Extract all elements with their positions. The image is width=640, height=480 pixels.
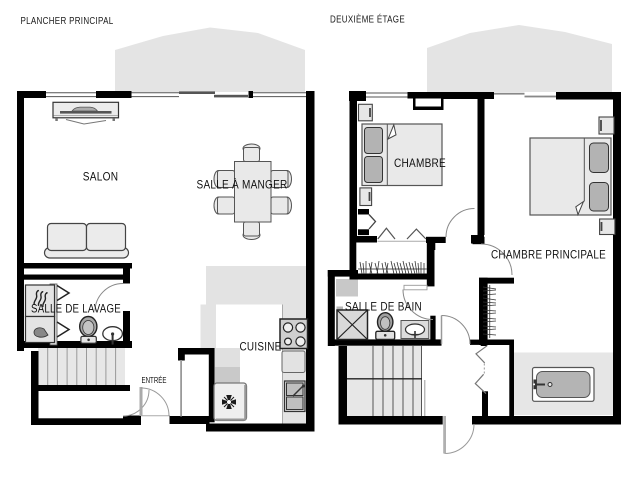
svg-text:ENTRÉE: ENTRÉE — [142, 376, 167, 385]
svg-text:CHAMBRE: CHAMBRE — [394, 156, 446, 170]
svg-text:SALLE DE BAIN: SALLE DE BAIN — [345, 300, 422, 314]
svg-text:SALLE À MANGER: SALLE À MANGER — [197, 177, 288, 192]
svg-text:DEUXIÈME ÉTAGE: DEUXIÈME ÉTAGE — [330, 13, 405, 26]
svg-text:SALON: SALON — [83, 170, 119, 184]
svg-text:CHAMBRE PRINCIPALE: CHAMBRE PRINCIPALE — [491, 248, 606, 262]
svg-text:SALLE DE LAVAGE: SALLE DE LAVAGE — [31, 302, 121, 316]
svg-text:CUISINE: CUISINE — [240, 340, 282, 354]
svg-text:PLANCHER PRINCIPAL: PLANCHER PRINCIPAL — [21, 15, 114, 27]
